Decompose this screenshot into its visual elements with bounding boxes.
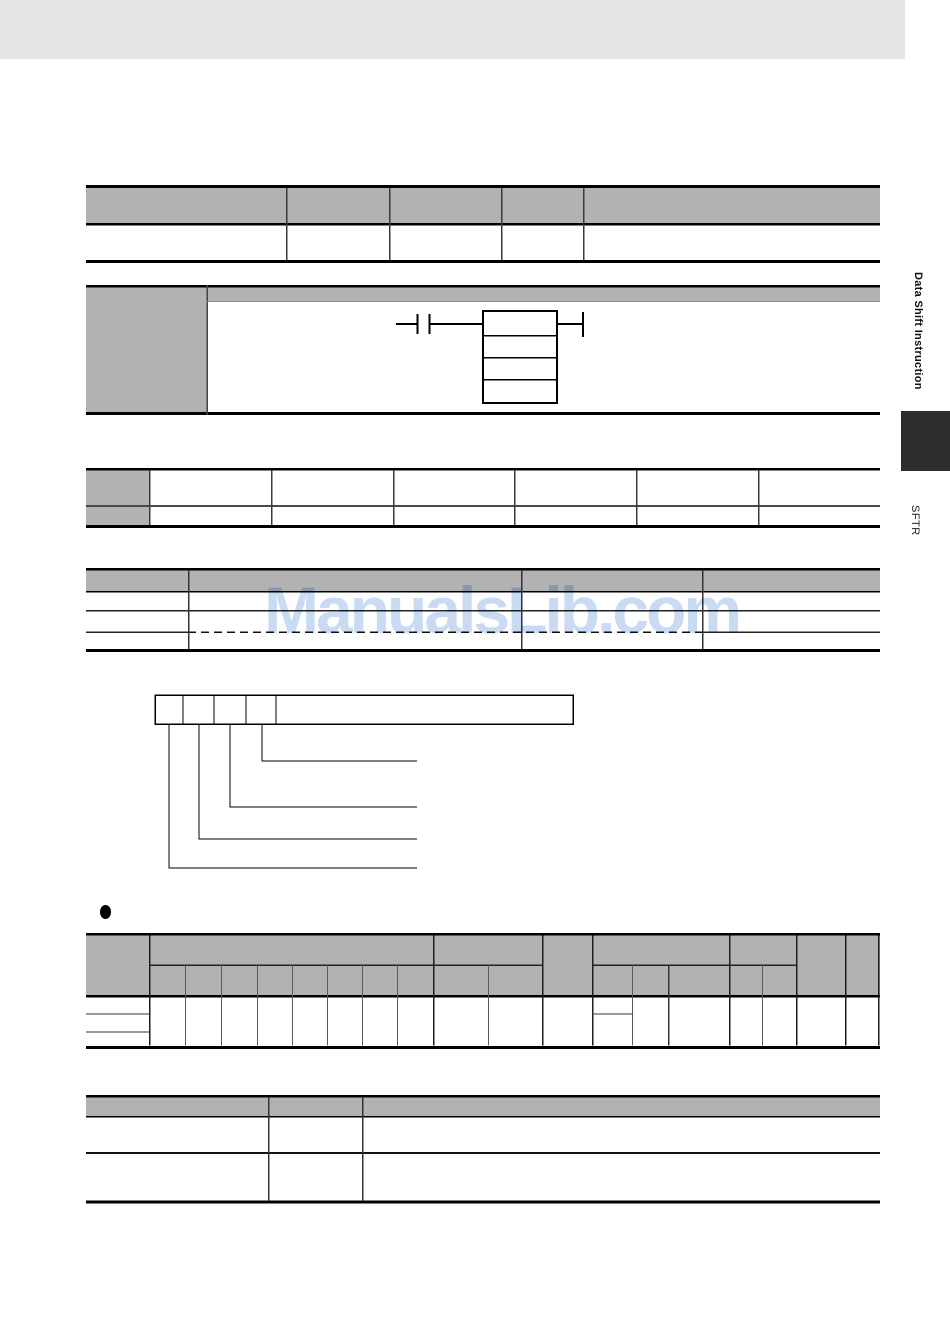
terminal-bar	[582, 312, 584, 337]
flags-table	[86, 1095, 880, 1204]
side-instruction-code: SFTR	[909, 505, 921, 536]
contact-bar-left	[417, 314, 419, 334]
ladder-diagram	[396, 311, 584, 403]
side-thumb-tab-marker	[901, 411, 950, 471]
page-top-banner	[0, 0, 905, 59]
applicable-areas-table	[86, 468, 880, 528]
summary-table	[86, 185, 880, 263]
ladder-symbol-panel	[86, 285, 880, 415]
callout-lines	[169, 724, 417, 868]
bullet-marker	[100, 905, 111, 919]
control-word-bit-diagram	[150, 690, 600, 875]
manualslib-watermark: ManualsLib.com	[264, 577, 739, 643]
manual-page: Data Shift Instruction SFTR	[0, 0, 950, 1344]
operand-specifications-table	[86, 933, 880, 1049]
side-section-title: Data Shift Instruction	[912, 272, 924, 390]
